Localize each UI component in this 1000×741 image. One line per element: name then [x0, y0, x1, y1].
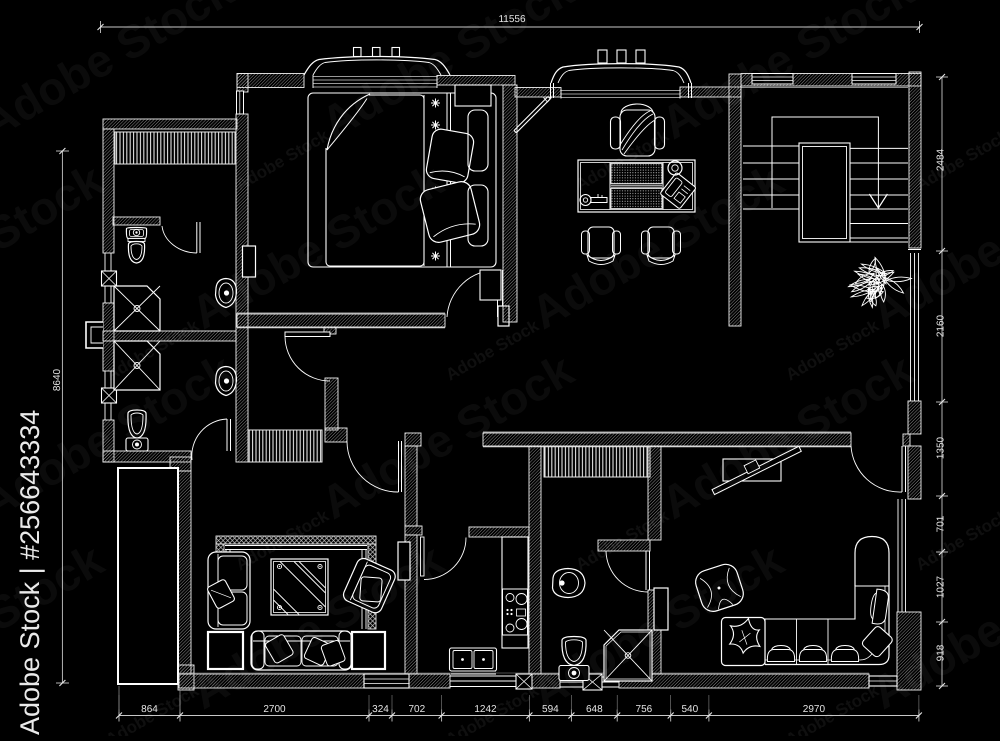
- svg-text:701: 701: [936, 515, 947, 532]
- svg-text:702: 702: [408, 704, 425, 715]
- svg-text:1027: 1027: [936, 575, 947, 598]
- svg-text:1350: 1350: [936, 436, 947, 459]
- svg-text:756: 756: [636, 704, 653, 715]
- svg-text:8640: 8640: [52, 368, 63, 391]
- svg-text:324: 324: [372, 704, 389, 715]
- svg-text:540: 540: [681, 704, 698, 715]
- svg-text:Adobe Stock | #256643334: Adobe Stock | #256643334: [15, 410, 45, 735]
- svg-text:648: 648: [586, 704, 603, 715]
- svg-text:2700: 2700: [263, 704, 286, 715]
- svg-text:2160: 2160: [936, 314, 947, 337]
